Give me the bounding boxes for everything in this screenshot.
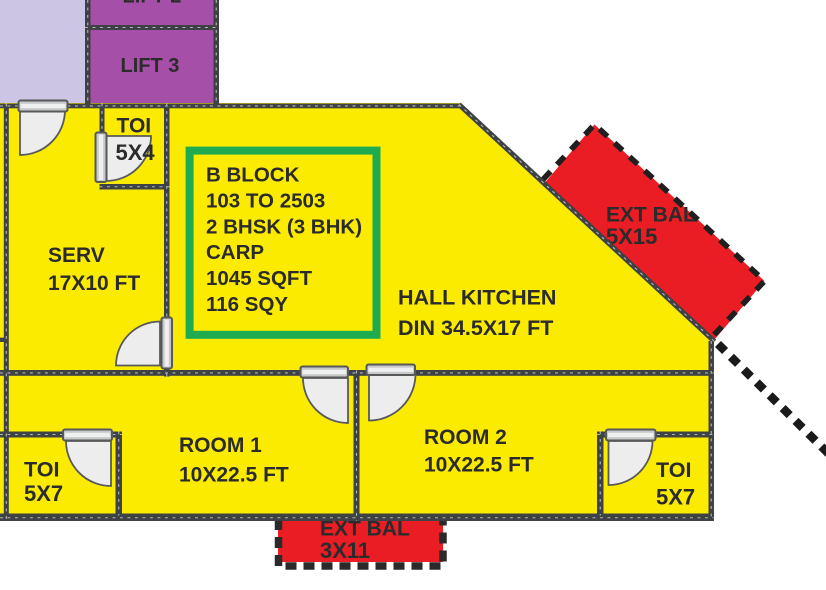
svg-text:TOI: TOI <box>24 458 59 482</box>
svg-text:ROOM 1: ROOM 1 <box>179 434 262 457</box>
svg-text:SERV: SERV <box>48 244 105 267</box>
svg-text:10X22.5 FT: 10X22.5 FT <box>179 464 289 487</box>
svg-text:CARP: CARP <box>206 241 264 264</box>
svg-text:DIN 34.5X17 FT: DIN 34.5X17 FT <box>398 316 553 340</box>
svg-text:5X4: 5X4 <box>116 140 156 165</box>
svg-text:TOI: TOI <box>656 458 691 482</box>
svg-text:1045 SQFT: 1045 SQFT <box>206 267 312 290</box>
svg-text:LIFT 3: LIFT 3 <box>121 55 180 77</box>
svg-text:116 SQY: 116 SQY <box>206 293 288 316</box>
svg-text:103 TO 2503: 103 TO 2503 <box>206 190 325 213</box>
svg-text:2 BHSK (3 BHK): 2 BHSK (3 BHK) <box>206 216 362 239</box>
svg-text:5X7: 5X7 <box>24 481 63 506</box>
svg-text:LIFT 2: LIFT 2 <box>123 0 182 8</box>
svg-text:TOI: TOI <box>117 115 152 138</box>
svg-text:HALL KITCHEN: HALL KITCHEN <box>398 286 556 310</box>
svg-text:ROOM 2: ROOM 2 <box>424 426 507 449</box>
svg-text:5X7: 5X7 <box>656 485 695 510</box>
svg-text:10X22.5 FT: 10X22.5 FT <box>424 454 534 477</box>
svg-text:B BLOCK: B BLOCK <box>206 164 300 187</box>
svg-text:3X11: 3X11 <box>320 538 370 563</box>
svg-text:17X10 FT: 17X10 FT <box>48 272 140 295</box>
